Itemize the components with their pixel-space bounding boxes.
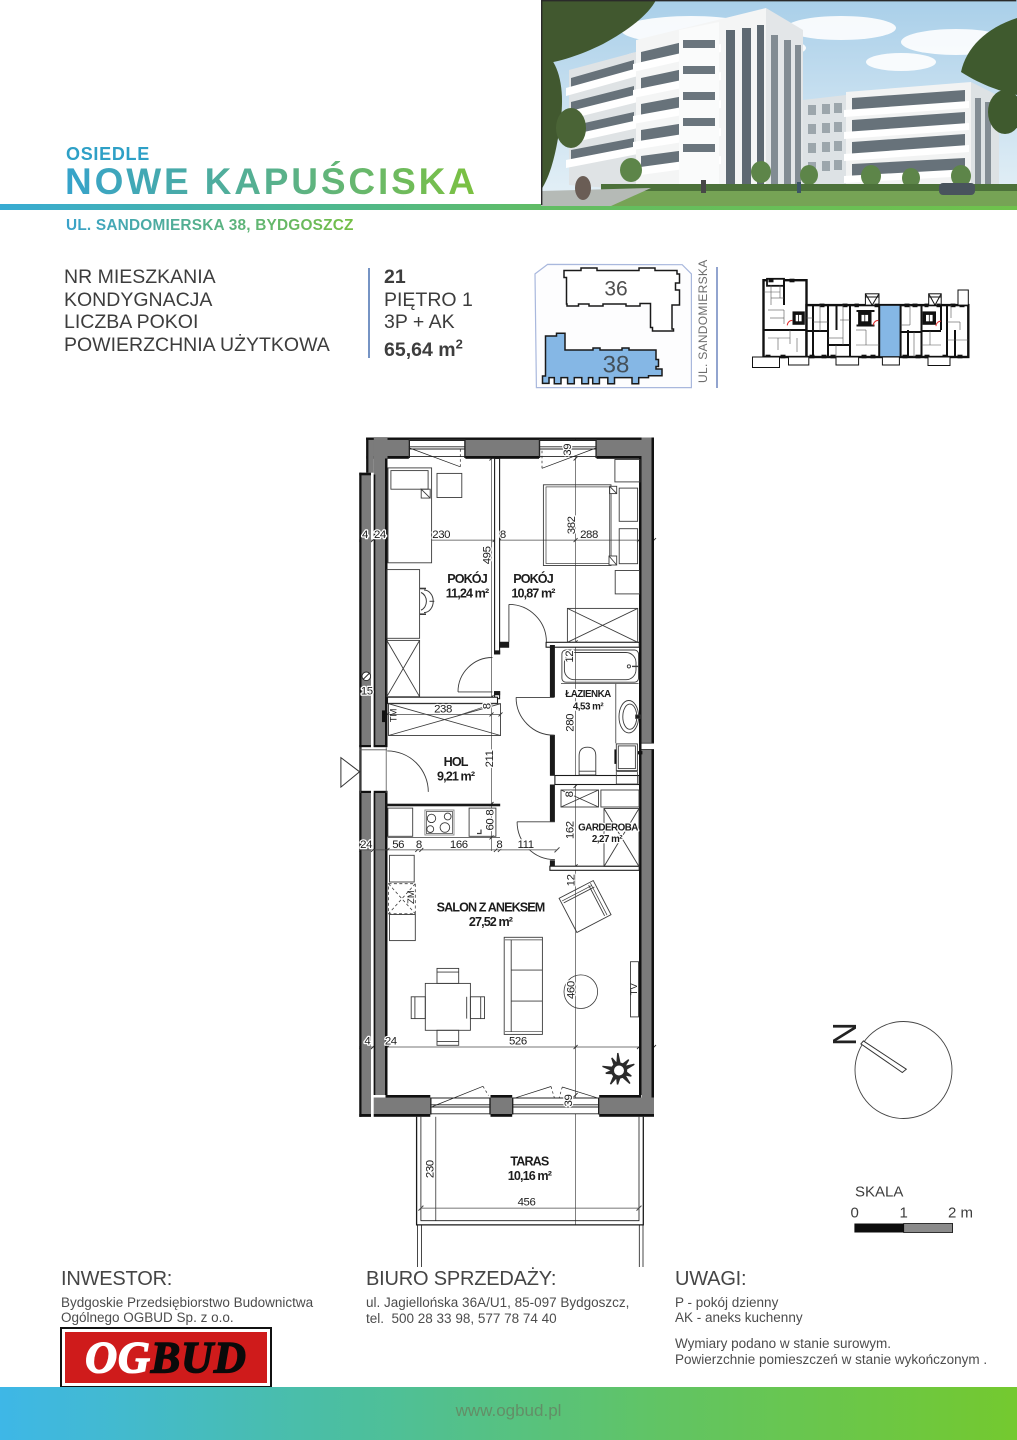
svg-text:15: 15	[361, 685, 373, 697]
svg-text:N: N	[826, 1022, 863, 1046]
svg-text:TARAS: TARAS	[510, 1155, 548, 1169]
svg-text:10,16 m²: 10,16 m²	[508, 1169, 552, 1183]
svg-text:1: 1	[900, 1205, 908, 1222]
svg-text:24: 24	[385, 1036, 397, 1048]
svg-text:56: 56	[392, 839, 404, 851]
svg-text:4: 4	[364, 1036, 370, 1048]
svg-text:8: 8	[484, 810, 496, 816]
svg-text:9,21 m²: 9,21 m²	[437, 770, 475, 784]
svg-text:TM: TM	[389, 708, 400, 722]
svg-text:8: 8	[564, 791, 576, 797]
svg-text:60: 60	[484, 819, 496, 831]
svg-text:456: 456	[518, 1197, 536, 1209]
svg-text:460: 460	[565, 981, 577, 999]
svg-text:8: 8	[500, 529, 506, 541]
svg-text:27,52 m²: 27,52 m²	[469, 915, 513, 929]
svg-text:11,24 m²: 11,24 m²	[446, 587, 489, 601]
svg-text:288: 288	[580, 529, 598, 541]
svg-text:238: 238	[434, 703, 452, 715]
svg-text:166: 166	[450, 839, 468, 851]
svg-text:POKÓJ: POKÓJ	[447, 571, 487, 586]
svg-text:GARDEROBA: GARDEROBA	[578, 823, 638, 834]
svg-text:162: 162	[565, 821, 577, 839]
svg-text:39: 39	[563, 1095, 575, 1107]
svg-text:2 m: 2 m	[948, 1205, 973, 1222]
svg-text:24: 24	[360, 839, 372, 851]
svg-text:2,27 m²: 2,27 m²	[592, 834, 624, 845]
svg-text:36: 36	[604, 278, 627, 301]
svg-text:230: 230	[432, 529, 450, 541]
svg-text:230: 230	[425, 1160, 437, 1178]
svg-text:111: 111	[518, 839, 534, 851]
svg-text:SALON Z ANEKSEM: SALON Z ANEKSEM	[437, 901, 545, 915]
svg-text:280: 280	[565, 714, 577, 732]
svg-text:526: 526	[509, 1036, 527, 1048]
svg-text:8: 8	[496, 839, 502, 851]
svg-text:12: 12	[564, 651, 576, 663]
svg-text:0: 0	[851, 1205, 859, 1222]
svg-text:211: 211	[484, 750, 496, 767]
svg-text:24: 24	[374, 529, 386, 541]
svg-text:8: 8	[416, 839, 422, 851]
svg-text:10,87 m²: 10,87 m²	[511, 587, 555, 601]
svg-text:4: 4	[362, 529, 368, 541]
svg-text:38: 38	[603, 352, 630, 379]
svg-text:HOL: HOL	[444, 755, 469, 769]
svg-text:382: 382	[566, 516, 578, 534]
svg-text:ZM: ZM	[406, 890, 417, 904]
svg-text:ŁAZIENKA: ŁAZIENKA	[565, 689, 611, 700]
svg-text:SKALA: SKALA	[855, 1184, 903, 1201]
svg-text:8: 8	[481, 703, 493, 709]
svg-text:POKÓJ: POKÓJ	[513, 571, 553, 586]
svg-text:4,53 m²: 4,53 m²	[573, 702, 605, 713]
svg-text:12: 12	[565, 874, 577, 886]
svg-text:TV: TV	[629, 983, 640, 996]
svg-text:495: 495	[482, 546, 494, 564]
svg-text:39: 39	[562, 444, 574, 456]
